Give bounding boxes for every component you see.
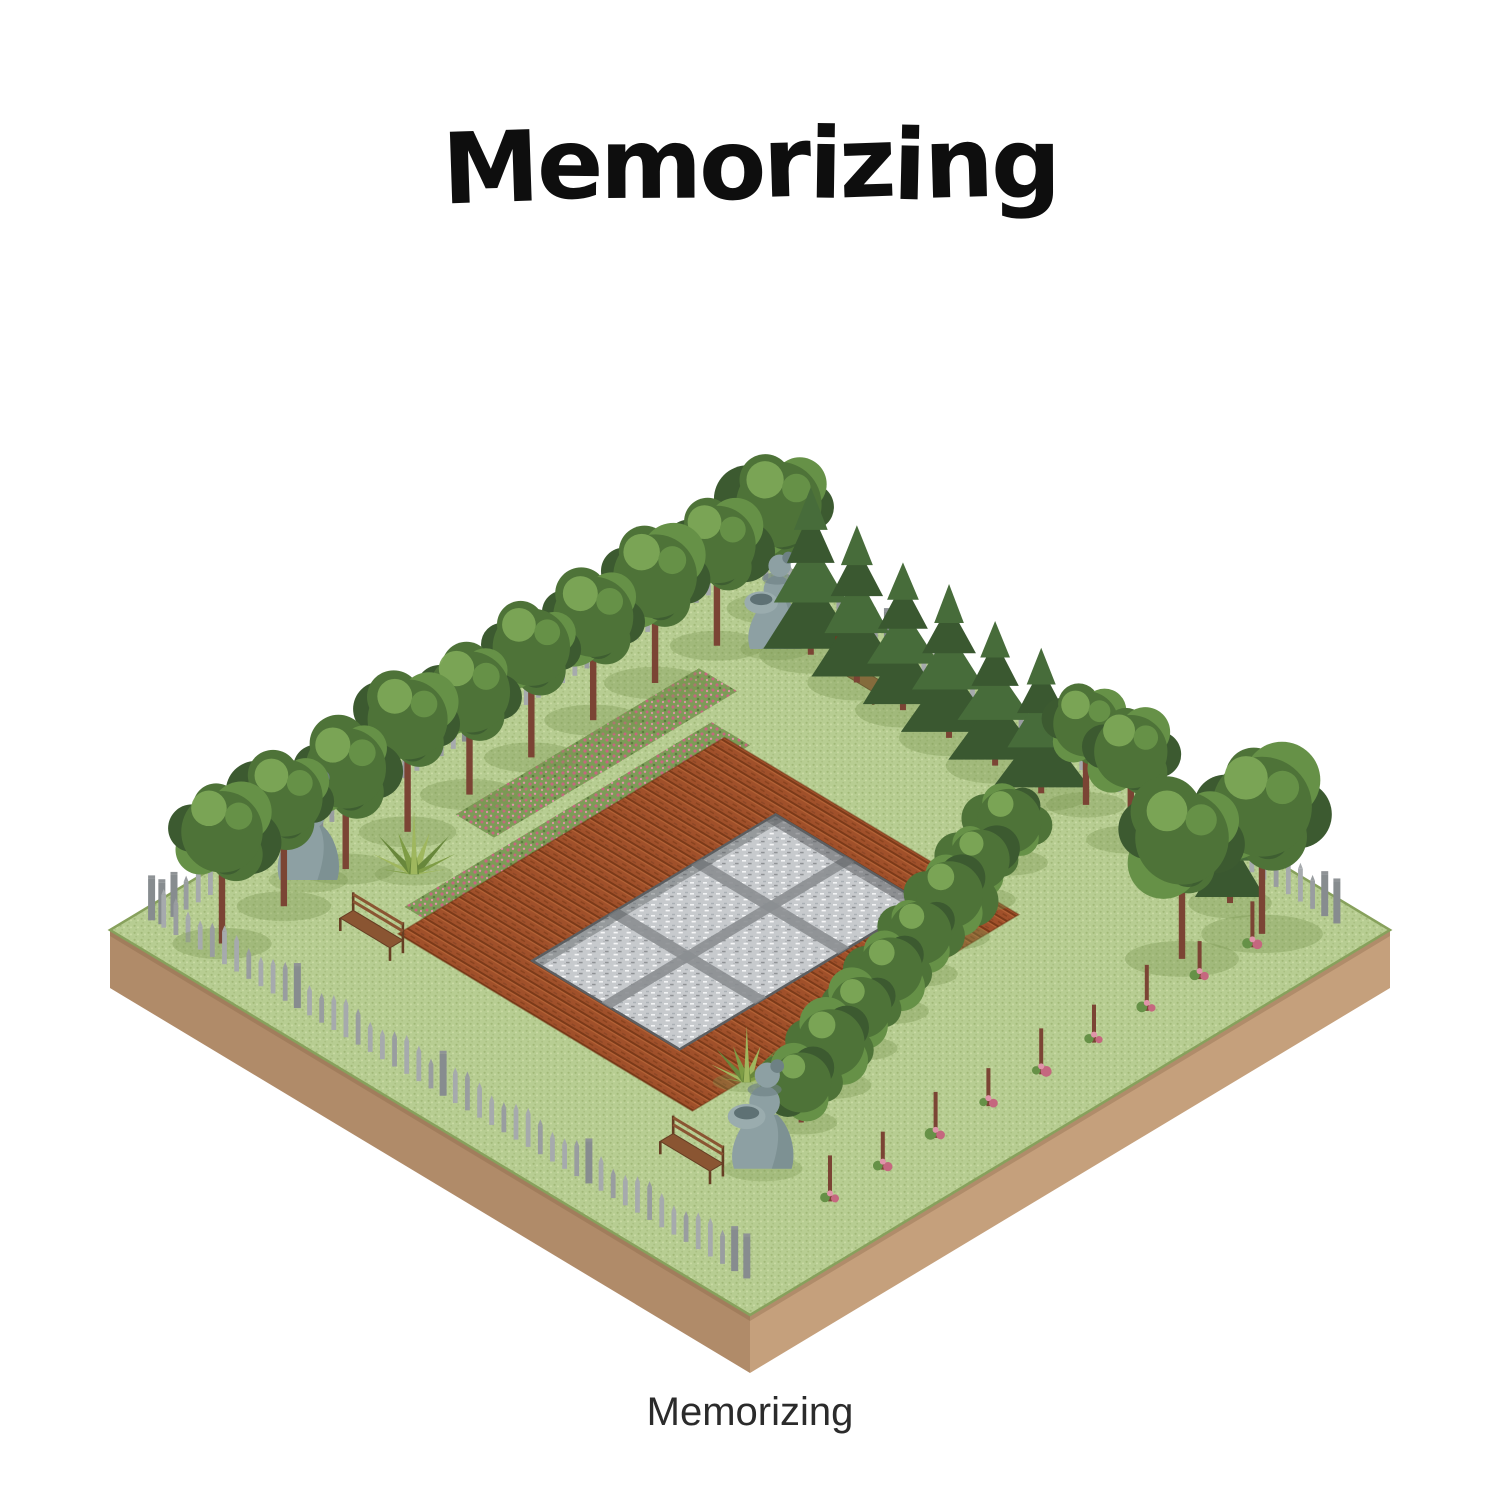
- fence-picket: [684, 1211, 689, 1242]
- fence-picket: [271, 959, 276, 994]
- fence-picket: [514, 1104, 519, 1140]
- fence-picket: [368, 1022, 373, 1052]
- fence-picket: [319, 993, 324, 1023]
- fence-picket: [331, 995, 336, 1030]
- fence-picket: [234, 935, 239, 972]
- fence-picket: [611, 1169, 616, 1198]
- fence-picket: [344, 998, 349, 1037]
- fence-picket: [696, 1212, 701, 1249]
- fence-picket: [453, 1067, 458, 1103]
- fence-picket: [198, 920, 203, 949]
- fence-picket: [184, 876, 189, 910]
- fence-picket: [392, 1031, 397, 1066]
- fence-picket: [222, 925, 227, 964]
- fence-picket: [647, 1181, 652, 1220]
- fence-picket: [1321, 871, 1328, 916]
- flashcard-page: Memorizing Memorizing: [0, 0, 1500, 1500]
- fence-picket: [246, 948, 251, 979]
- fence-picket: [294, 963, 301, 1008]
- fence-picket: [501, 1102, 506, 1132]
- fence-picket: [465, 1071, 470, 1110]
- fence-picket: [526, 1108, 531, 1147]
- fence-picket: [659, 1193, 664, 1227]
- fence-picket: [585, 1138, 592, 1183]
- fence-picket: [416, 1045, 421, 1081]
- fence-picket: [259, 957, 264, 986]
- fence-picket: [161, 889, 166, 928]
- fence-picket: [720, 1230, 725, 1264]
- fence-picket: [1298, 863, 1303, 902]
- fence-picket: [210, 923, 215, 957]
- fence-picket: [708, 1218, 713, 1257]
- fence-picket: [380, 1029, 385, 1059]
- fence-picket: [477, 1082, 482, 1117]
- fence-picket: [599, 1156, 604, 1191]
- fence-picket: [623, 1175, 628, 1206]
- fence-picket: [404, 1035, 409, 1074]
- fence-picket: [743, 1233, 750, 1278]
- fence-picket: [1333, 878, 1340, 923]
- fence-picket: [440, 1051, 447, 1096]
- fence-picket: [574, 1140, 579, 1176]
- fence-picket: [562, 1138, 567, 1168]
- fence-picket: [307, 985, 312, 1015]
- fence-picket: [429, 1058, 434, 1088]
- fence-picket: [550, 1132, 555, 1162]
- fence-picket: [538, 1119, 543, 1154]
- fence-picket: [489, 1095, 494, 1125]
- fence-picket: [731, 1226, 738, 1271]
- fence-picket: [1310, 875, 1315, 909]
- fence-picket: [173, 898, 178, 935]
- fence-picket: [635, 1176, 640, 1213]
- fence-picket: [672, 1205, 677, 1234]
- caption: Memorizing: [0, 1390, 1500, 1435]
- fence-picket: [356, 1009, 361, 1045]
- fence-picket: [148, 875, 155, 920]
- garden-illustration: [0, 0, 1500, 1500]
- fence-picket: [283, 962, 288, 1001]
